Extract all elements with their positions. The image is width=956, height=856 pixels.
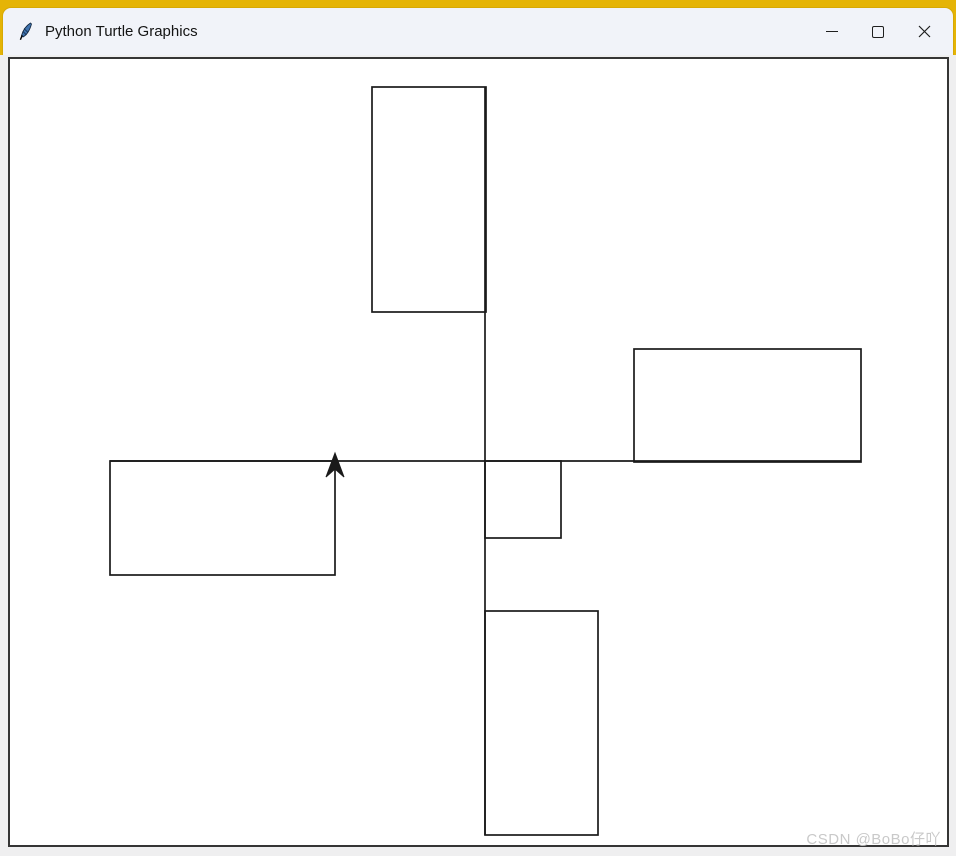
tk-feather-icon [17, 22, 35, 42]
window-controls [809, 8, 953, 55]
maximize-button[interactable] [855, 8, 901, 55]
screenshot-stage: Python Turtle Graphics CSDN @BoBo仔吖 [0, 0, 956, 856]
window-frame [0, 55, 956, 856]
titlebar[interactable]: Python Turtle Graphics [3, 8, 953, 55]
drawing-canvas [8, 57, 949, 847]
close-icon [918, 25, 931, 38]
maximize-icon [872, 26, 884, 38]
watermark: CSDN @BoBo仔吖 [806, 828, 941, 849]
close-button[interactable] [901, 8, 947, 55]
minimize-icon [826, 31, 838, 32]
minimize-button[interactable] [809, 8, 855, 55]
window-title: Python Turtle Graphics [45, 23, 198, 40]
